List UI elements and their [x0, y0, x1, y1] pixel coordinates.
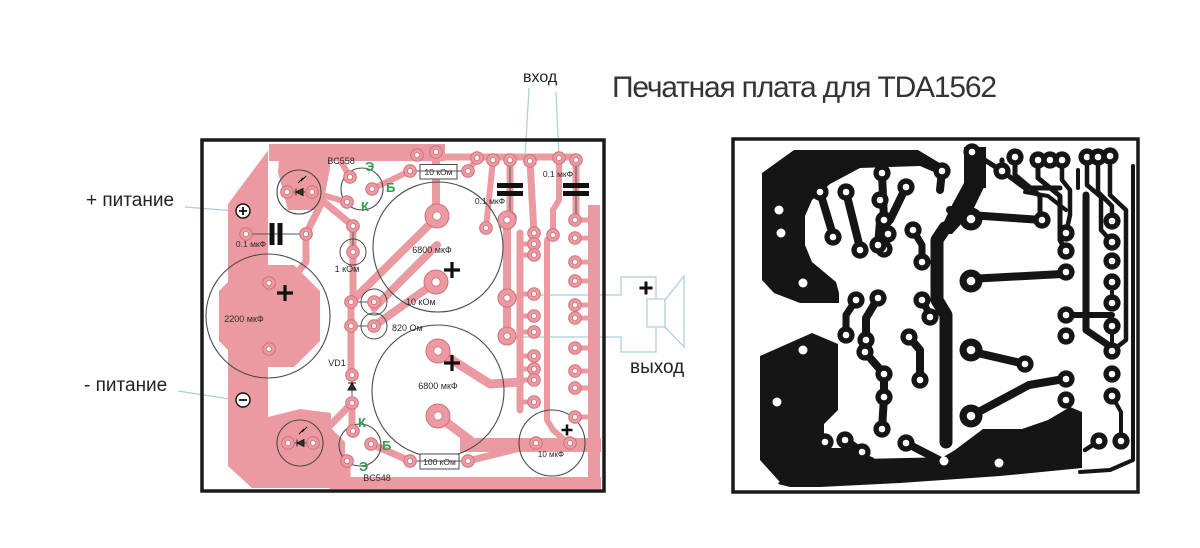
svg-text:820 Ом: 820 Ом	[392, 323, 423, 333]
svg-text:выход: выход	[630, 357, 684, 378]
svg-text:Э: Э	[365, 159, 374, 174]
svg-text:0.1 мкФ: 0.1 мкФ	[236, 239, 266, 249]
svg-text:0.1 мкФ: 0.1 мкФ	[475, 196, 505, 206]
svg-text:вход: вход	[523, 69, 558, 86]
svg-text:BC548: BC548	[363, 473, 391, 483]
svg-text:Печатная плата для TDA1562: Печатная плата для TDA1562	[612, 71, 996, 104]
svg-text:1 кОм: 1 кОм	[335, 264, 360, 274]
svg-text:+ питание: + питание	[86, 190, 174, 211]
svg-text:BC558: BC558	[327, 156, 355, 166]
svg-text:Б: Б	[382, 438, 391, 453]
svg-text:2200 мкФ: 2200 мкФ	[224, 314, 264, 324]
svg-text:К: К	[361, 199, 369, 214]
svg-text:0.1 мкФ: 0.1 мкФ	[543, 169, 573, 179]
svg-text:VD1: VD1	[328, 358, 346, 368]
svg-text:10 кОм: 10 кОм	[425, 167, 453, 177]
svg-text:- питание: - питание	[84, 375, 167, 396]
svg-text:100 кОм: 100 кОм	[423, 457, 456, 467]
svg-text:6800 мкФ: 6800 мкФ	[412, 245, 452, 255]
svg-text:К: К	[358, 415, 366, 430]
svg-text:10 кОм: 10 кОм	[406, 297, 436, 307]
svg-text:6800 мкФ: 6800 мкФ	[418, 381, 458, 391]
svg-text:10 мкФ: 10 мкФ	[538, 450, 564, 459]
svg-text:Э: Э	[359, 459, 368, 474]
svg-text:Б: Б	[386, 180, 395, 195]
